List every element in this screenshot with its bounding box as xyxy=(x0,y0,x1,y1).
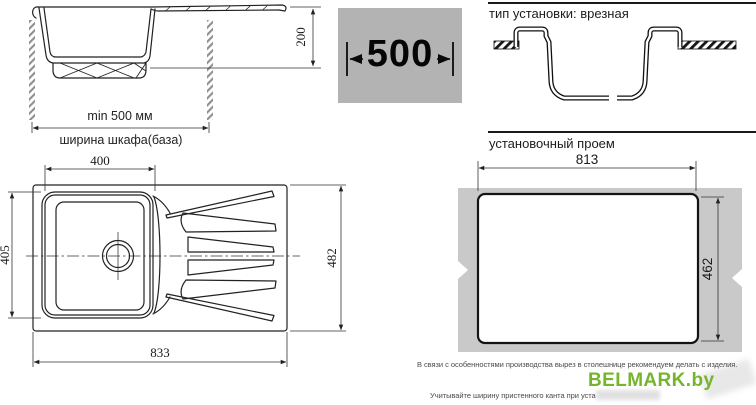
opening-height-label: 462 xyxy=(700,258,715,281)
bowl-length-label: 405 xyxy=(0,245,12,265)
bowl xyxy=(42,192,153,318)
edging-note: Учитывайте ширину пристенного канта при … xyxy=(430,391,596,400)
mounting-opening-drawing: 813 462 xyxy=(440,147,756,362)
side-view-drawing: 200 min 500 мм ширина шкафа(база) xyxy=(0,0,330,150)
sink-rim-profile xyxy=(516,29,680,98)
overall-width-label: 833 xyxy=(150,345,170,360)
cabinet-width-value: 500 xyxy=(338,8,462,103)
base-cross-hatch xyxy=(60,63,146,78)
bowl-length-dimension xyxy=(8,192,41,318)
cabinet-width-dimension xyxy=(32,122,209,133)
sink-section-profile xyxy=(33,5,286,78)
opening-width-label: 813 xyxy=(576,152,599,167)
countertop-bars xyxy=(494,41,736,49)
cutout-opening xyxy=(478,194,698,343)
depth-dimension-label: 200 xyxy=(293,27,308,47)
install-type-heading: тип установки: врезная xyxy=(489,6,629,21)
production-note: В связи с особенностями производства выр… xyxy=(417,360,737,369)
bowl-width-label: 400 xyxy=(90,153,110,168)
cabinet-wall-posts xyxy=(29,20,213,120)
brand-logo: BELMARK.by xyxy=(588,370,714,392)
top-view-drawing: 400 405 833 482 xyxy=(0,150,360,380)
divider-middle xyxy=(488,131,756,133)
bowl-width-dimension xyxy=(45,165,155,191)
drop-in-section-drawing xyxy=(480,20,756,130)
overall-length-label: 482 xyxy=(324,248,339,268)
divider-top xyxy=(488,2,756,4)
cabinet-width-label: ширина шкафа(база) xyxy=(60,133,183,147)
min-width-label: min 500 мм xyxy=(87,109,152,123)
cabinet-width-box: 500 xyxy=(338,8,462,103)
